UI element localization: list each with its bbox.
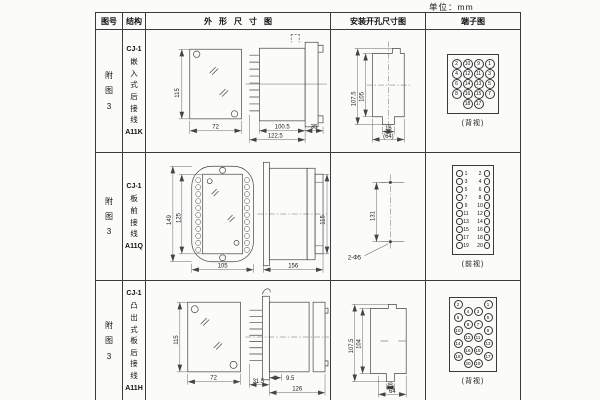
terminal-circle: 7 <box>485 89 495 99</box>
model-label: CJ-1 <box>126 290 141 297</box>
header-fig-no: 图号 <box>96 13 123 29</box>
terminal-circle <box>484 178 491 185</box>
dim-side-height: 115 <box>321 215 327 225</box>
terminal-circle: 14 <box>463 79 473 89</box>
dim-h-outer: (64) <box>383 134 394 140</box>
terminal-row: 614135 <box>451 79 495 89</box>
model-label: CJ-1 <box>126 46 141 53</box>
dimension-table: 图号 结构 外形尺寸图 安装开孔尺寸图 端子图 附图3 CJ-1 嵌入式后接线 … <box>95 12 521 400</box>
hole-note: 2-Φ5 <box>348 256 362 262</box>
fig-no: 附图3 <box>105 194 113 240</box>
table-header-row: 图号 结构 外形尺寸图 安装开孔尺寸图 端子图 <box>96 13 521 30</box>
dim-fin-depth: 31.5 <box>253 379 265 385</box>
structure-desc: 嵌入式后接线 <box>130 56 138 126</box>
terminal-circle: 13 <box>474 79 484 89</box>
terminal-number: 13 <box>463 219 470 225</box>
structure-desc: 凸出式板后接线 <box>130 300 138 381</box>
dim-v-outer: 107.5 <box>352 91 358 107</box>
front-view <box>190 49 242 119</box>
cutout-shape <box>371 304 407 381</box>
dim-hole-span: 131 <box>371 211 377 221</box>
terminal-number: 10 <box>477 203 484 209</box>
dimension-lines <box>179 49 242 134</box>
terminal-row: 34 <box>456 178 490 186</box>
dim-offset: 9.5 <box>286 376 295 382</box>
terminal-row: 1718 <box>456 234 490 242</box>
install-drawing-a11k: 107.5 105 16 (64) <box>331 31 425 151</box>
dim-h-inner: 16 <box>385 126 392 132</box>
dimension-lines <box>177 302 241 385</box>
dim-v-outer: 107.5 <box>349 338 355 354</box>
view-label: (背视) <box>462 376 485 386</box>
dim-h-inner: 16 <box>388 382 394 389</box>
terminal-diagram: 210914121136141358161571817 <box>447 54 499 114</box>
terminal-number: 5 <box>463 187 470 193</box>
side-view <box>245 34 327 126</box>
side-view <box>245 289 329 380</box>
terminal-circle <box>484 210 491 217</box>
terminal-circle <box>484 234 491 241</box>
dim-flange: 35 <box>311 124 318 130</box>
front-view <box>192 166 254 261</box>
terminal-circle <box>484 194 491 201</box>
header-install: 安装开孔尺寸图 <box>331 13 426 29</box>
dim-v-inner: 104 <box>357 338 363 349</box>
outline-drawing-a11k: 115 72 100.5 122.5 35 <box>146 31 330 151</box>
terminal-row: 910 <box>456 202 490 210</box>
terminal-number: 3 <box>463 179 470 185</box>
dim-height: 149 <box>167 214 173 225</box>
dim-body-depth: 126 <box>292 387 303 393</box>
terminal-number: 8 <box>477 195 484 201</box>
terminal-row: 412113 <box>451 69 495 79</box>
terminal-circle: 10 <box>463 59 473 69</box>
terminal-circle: 8 <box>452 89 462 99</box>
terminal-circle: 15 <box>474 89 484 99</box>
terminal-number: 7 <box>463 195 470 201</box>
terminal-number: 15 <box>463 227 470 233</box>
side-view <box>257 162 327 265</box>
header-outline: 外形尺寸图 <box>146 13 331 29</box>
dim-depth: 156 <box>288 264 299 270</box>
terminal-number: 18 <box>477 235 484 241</box>
terminal-circle: 11 <box>474 69 484 79</box>
terminal-number: 14 <box>477 219 484 225</box>
dim-window-height: 125 <box>176 212 182 223</box>
terminal-number: 6 <box>477 187 484 193</box>
terminal-number: 16 <box>477 227 484 233</box>
terminal-number: 19 <box>463 243 470 249</box>
view-label: (背视) <box>462 118 485 128</box>
install-drawing-a11h: 107.5 104 16 64 <box>331 282 425 400</box>
terminal-circle: 4 <box>452 69 462 79</box>
dim-height: 115 <box>174 335 180 345</box>
terminal-circle <box>484 186 491 193</box>
dimension-lines <box>263 174 329 272</box>
type-code: A11H <box>125 385 143 392</box>
view-label: (前视) <box>462 259 485 269</box>
terminal-number: 20 <box>477 243 484 249</box>
dim-width: 105 <box>218 264 229 270</box>
table-row: 附图3 CJ-1 嵌入式后接线 A11K <box>96 30 521 153</box>
terminal-row: 21091 <box>451 59 495 69</box>
terminal-number: 4 <box>477 179 484 185</box>
dim-width: 72 <box>212 124 219 130</box>
dimension-lines <box>352 304 406 397</box>
terminal-circle <box>484 242 491 249</box>
dim-height: 115 <box>175 88 181 98</box>
terminal-row: 56 <box>456 186 490 194</box>
cutout-shape <box>367 42 411 133</box>
terminal-circle: 3 <box>485 69 495 79</box>
terminal-circle: 16 <box>463 89 473 99</box>
outline-drawing-a11h: 115 72 31.5 9.5 126 <box>146 282 330 400</box>
terminal-number: 1 <box>463 171 470 177</box>
terminal-row: 12 <box>456 170 490 178</box>
header-structure: 结构 <box>123 13 146 29</box>
type-code: A11K <box>125 129 143 136</box>
terminal-circle: 20 <box>464 359 473 368</box>
terminal-circle: 5 <box>485 79 495 89</box>
terminal-circle: 9 <box>474 59 484 69</box>
terminal-row: 1817 <box>451 99 495 109</box>
terminal-diagram: 1234567891011121314151617181920 <box>452 165 494 255</box>
dim-h-outer: 64 <box>389 389 396 395</box>
terminal-circle: 1 <box>485 59 495 69</box>
fig-no: 附图3 <box>105 68 113 114</box>
terminal-number: 2 <box>477 171 484 177</box>
model-label: CJ-1 <box>126 183 141 190</box>
terminal-row: 1516 <box>456 226 490 234</box>
install-drawing-a11q: 131 2-Φ5 <box>331 154 425 279</box>
terminal-circle: 6 <box>452 79 462 89</box>
dim-width: 72 <box>210 375 217 381</box>
dim-body-depth: 100.5 <box>275 124 291 130</box>
terminal-circle <box>484 202 491 209</box>
terminal-row: 1112 <box>456 210 490 218</box>
terminal-row: 816157 <box>451 89 495 99</box>
terminal-circle <box>484 226 491 233</box>
terminal-circle <box>484 218 491 225</box>
type-code: A11Q <box>125 243 143 250</box>
table-row: 附图3 CJ-1 凸出式板后接线 A11H <box>96 281 521 400</box>
table-row: 附图3 CJ-1 板前接线 A11Q <box>96 153 521 281</box>
terminal-row: 78 <box>456 194 490 202</box>
dim-v-inner: 105 <box>360 91 366 102</box>
terminal-number: 9 <box>463 203 470 209</box>
terminal-number: 17 <box>463 235 470 241</box>
terminal-circle: 17 <box>474 99 484 109</box>
terminal-row: 2019 <box>453 360 493 367</box>
terminal-number: 11 <box>463 211 470 217</box>
terminal-diagram: 2143658710912111413161518172019 <box>449 297 497 372</box>
terminal-circle <box>484 170 491 177</box>
terminal-row: 1920 <box>456 242 490 250</box>
fig-no: 附图3 <box>105 318 113 364</box>
terminal-number: 12 <box>477 211 484 217</box>
terminal-circle: 18 <box>463 99 473 109</box>
terminal-row: 1314 <box>456 218 490 226</box>
terminal-circle: 12 <box>463 69 473 79</box>
terminal-circle: 2 <box>452 59 462 69</box>
outline-drawing-a11q: 149 125 105 156 115 <box>146 154 330 279</box>
dim-total-depth: 122.5 <box>268 134 284 140</box>
front-view <box>188 302 241 372</box>
terminal-circle: 19 <box>474 359 483 368</box>
structure-desc: 板前接线 <box>130 193 138 240</box>
datasheet-page: 单位：mm 图号 结构 外形尺寸图 安装开孔尺寸图 端子图 附图3 CJ-1 嵌… <box>0 0 600 400</box>
header-terminal: 端子图 <box>426 13 521 29</box>
